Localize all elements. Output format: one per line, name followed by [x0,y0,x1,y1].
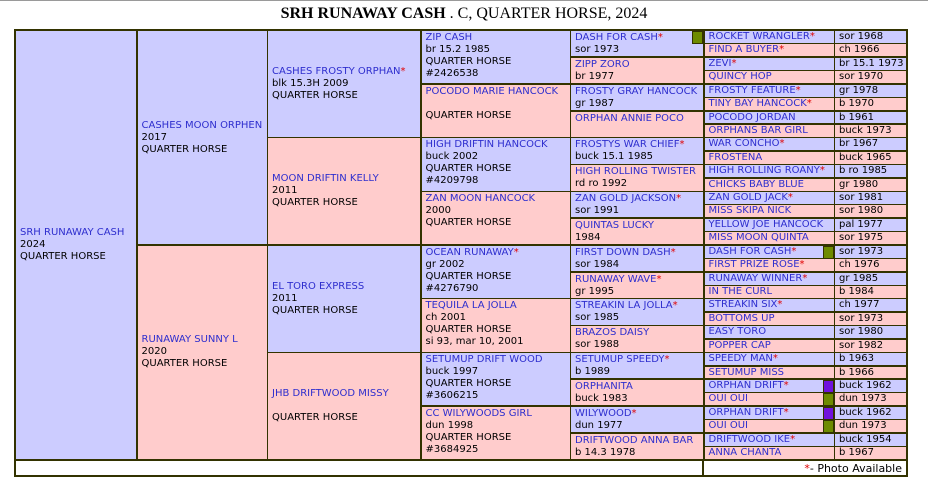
horse-detail-text: sor 1973 [839,246,883,258]
pedigree-cell-g6-1-detail: sor 1968 [835,31,906,43]
horse-name-line: ORPHAN DRIFT* [709,407,789,419]
horse-detail-text: sor 1980 [839,326,883,338]
horse-detail-text: 2011 [272,293,420,305]
horse-detail-text: sor 1980 [839,205,883,217]
horse-detail-text: sor 1975 [839,232,883,244]
pedigree-cell-g6-23-name: EASY TORO [705,326,834,338]
photo-available-asterisk: * [773,353,778,364]
horse-detail-text: QUARTER HORSE [426,163,570,175]
pedigree-cell-g6-31-name: DRIFTWOOD IKE* [705,434,834,446]
pedigree-cell-g5-9: FIRST DOWN DASH*sor 1984 [571,246,703,271]
horse-name-link[interactable]: HIGH DRIFTIN HANCOCK [426,139,548,150]
horse-name-link[interactable]: RUNAWAY WAVE [575,274,656,285]
horse-name-link[interactable]: STREAKIN SIX [709,299,778,310]
horse-detail-text: blk 15.3H 2009 [272,78,420,90]
horse-name-link[interactable]: SETUMUP SPEEDY [575,354,665,365]
pedigree-cell-g6-6-name: TINY BAY HANCOCK* [705,98,834,110]
pedigree-cell-g6-28-name: OUI OUI [705,393,834,405]
horse-detail-text: QUARTER HORSE [272,412,420,424]
pedigree-cell-g6-24-detail: sor 1982 [835,340,906,352]
horse-name-line: POCODO MARIE HANCOCK [426,86,570,98]
horse-name-line: EL TORO EXPRESS [272,281,420,293]
horse-name-link[interactable]: DRIFTWOOD IKE [709,434,791,445]
horse-detail-text: #3606215 [426,390,570,402]
horse-name-line: BOTTOMS UP [709,313,775,325]
horse-detail-text: QUARTER HORSE [272,90,420,102]
pedigree-cell-g6-21-name: STREAKIN SIX* [705,299,834,311]
pedigree-cell-g4-2: POCODO MARIE HANCOCKQUARTER HORSE [422,85,570,137]
horse-detail-text: QUARTER HORSE [426,110,570,122]
horse-name-line: ZEVI* [709,58,737,70]
title-horse-name: SRH RUNAWAY CASH [281,5,446,22]
horse-name-link[interactable]: CASHES MOON ORPHEN [142,120,263,131]
horse-name-link[interactable]: IN THE CURL [709,286,773,297]
horse-name-line: ZIPP ZORO [575,59,703,71]
horse-name-line: POPPER CAP [709,340,771,352]
horse-name-link[interactable]: SPEEDY MAN [709,353,773,364]
pedigree-cell-g6-15-detail: pal 1977 [835,219,906,231]
horse-name-line: WAR CONCHO* [709,138,785,150]
horse-name-link[interactable]: TEQUILA LA JOLLA [426,300,517,311]
horse-name-link[interactable]: FROSTY FEATURE [709,85,796,96]
photo-available-asterisk: * [802,273,807,284]
horse-detail-text: ch 1976 [839,259,879,271]
horse-name-link[interactable]: CHICKS BABY BLUE [709,179,804,190]
photo-available-asterisk: * [671,247,676,258]
horse-name-link[interactable]: WAR CONCHO [709,138,780,149]
horse-name-line: HIGH DRIFTIN HANCOCK [426,139,570,151]
pedigree-cell-g6-7-name: POCODO JORDAN [705,112,834,124]
horse-detail-text: sor 1981 [839,192,883,204]
horse-name-link[interactable]: SETUMUP MISS [709,367,785,378]
horse-detail-text: sor 1982 [839,340,883,352]
photo-color-box-purple [823,407,834,419]
horse-detail-text: b 1970 [839,98,874,110]
photo-available-asterisk: * [680,139,685,150]
photo-available-asterisk: * [788,192,793,203]
horse-name-link[interactable]: POCODO MARIE HANCOCK [426,86,559,97]
photo-available-asterisk: * [401,66,406,77]
horse-name-link[interactable]: ZIP CASH [426,32,473,43]
horse-name-line: DRIFTWOOD ANNA BAR [575,435,703,447]
horse-detail-text: QUARTER HORSE [272,305,420,317]
horse-name-link[interactable]: OUI OUI [709,420,748,431]
title-suffix: . C, QUARTER HORSE, 2024 [446,5,648,22]
pedigree-cell-g6-29-detail: buck 1962 [835,407,906,419]
horse-name-link[interactable]: HIGH ROLLING TWISTER [575,166,696,177]
horse-name-link[interactable]: QUINCY HOP [709,71,772,82]
photo-available-asterisk: * [777,299,782,310]
horse-detail-text: QUARTER HORSE [272,197,420,209]
photo-available-asterisk: * [780,138,785,149]
pedigree-cell-g6-19-name: RUNAWAY WINNER* [705,273,834,285]
pedigree-cell-g6-22-name: BOTTOMS UP [705,313,834,325]
horse-detail-text: sor 1970 [839,71,883,83]
horse-name-link[interactable]: TINY BAY HANCOCK [709,98,807,109]
horse-detail-text: QUARTER HORSE [20,251,136,263]
horse-name-link[interactable]: ZAN GOLD JACKSON [575,193,676,204]
pedigree-cell-g6-18-detail: ch 1976 [835,259,906,271]
pedigree-cell-g6-31-detail: buck 1954 [835,434,906,446]
horse-name-link[interactable]: EL TORO EXPRESS [272,281,364,292]
horse-detail-text: #3684925 [426,444,570,456]
horse-name-link[interactable]: ZIPP ZORO [575,59,630,70]
pedigree-cell-g5-7: ZAN GOLD JACKSON*sor 1991 [571,192,703,217]
pedigree-cell-g6-30-name: OUI OUI [705,420,834,432]
horse-name-link[interactable]: POPPER CAP [709,340,771,351]
horse-name-line: DASH FOR CASH* [575,32,703,44]
horse-name-link[interactable]: FROSTY GRAY HANCOCK [575,86,697,97]
pedigree-cell-g6-10-detail: buck 1965 [835,152,906,164]
horse-detail-text: #4209798 [426,175,570,187]
pedigree-cell-g6-5-name: FROSTY FEATURE* [705,85,834,97]
pedigree-cell-g3-3: EL TORO EXPRESS2011QUARTER HORSE [268,246,420,352]
horse-detail-text [575,125,703,137]
pedigree-cell-g3-2: MOON DRIFTIN KELLY2011QUARTER HORSE [268,138,420,244]
pedigree-cell-g5-12: BRAZOS DAISYsor 1988 [571,326,703,351]
horse-detail-text: b 1961 [839,112,874,124]
photo-color-box-green [692,31,703,44]
pedigree-cell-g6-26-detail: b 1966 [835,367,906,379]
horse-detail-text [426,98,570,110]
horse-name-line: FIND A BUYER* [709,44,785,56]
horse-name-link[interactable]: ZAN GOLD JACK [709,192,788,203]
pedigree-cell-g4-4: ZAN MOON HANCOCK2000QUARTER HORSE [422,192,570,244]
horse-name-link[interactable]: POCODO JORDAN [709,112,796,123]
photo-available-asterisk: * [791,246,796,257]
horse-name-link[interactable]: JHB DRIFTWOOD MISSY [272,388,389,399]
horse-name-link[interactable]: RUNAWAY WINNER [709,273,803,284]
pedigree-cell-g6-18-name: FIRST PRIZE ROSE* [705,259,834,271]
horse-name-link[interactable]: BOTTOMS UP [709,313,775,324]
horse-name-link[interactable]: CC WILYWOODS GIRL [426,408,532,419]
pedigree-table: SRH RUNAWAY CASH2024QUARTER HORSECASHES … [14,29,908,461]
horse-detail-text: ch 1966 [839,44,879,56]
horse-detail-text: buck 1954 [839,434,892,446]
horse-detail-text: sor 1985 [575,312,703,324]
horse-name-line: TINY BAY HANCOCK* [709,98,812,110]
horse-detail-text: dun 1973 [839,393,887,405]
horse-name-line: STREAKIN LA JOLLA* [575,300,703,312]
horse-name-link[interactable]: OCEAN RUNAWAY [426,247,514,258]
horse-detail-text: buck 1973 [839,125,892,137]
horse-detail-text: br 15.2 1985 [426,44,570,56]
pedigree-cell-g6-26-name: SETUMUP MISS [705,367,834,379]
photo-available-asterisk: * [790,434,795,445]
pedigree-cell-g6-2-detail: ch 1966 [835,44,906,56]
horse-detail-text: sor 1973 [839,313,883,325]
horse-name-link[interactable]: STREAKIN LA JOLLA [575,300,673,311]
horse-name-link[interactable]: BRAZOS DAISY [575,327,649,338]
horse-name-link[interactable]: ORPHAN DRIFT [709,380,784,391]
horse-name-link[interactable]: ORPHAN DRIFT [709,407,784,418]
footer-bar: * - Photo Available [14,461,908,477]
photo-available-asterisk: * [632,408,637,419]
horse-name-link[interactable]: QUINTAS LUCKY [575,220,654,231]
pedigree-cell-g5-4: ORPHAN ANNIE POCO [571,112,703,137]
pedigree-cell-g4-3: HIGH DRIFTIN HANCOCKbuck 2002QUARTER HOR… [422,138,570,190]
horse-name-line: SPEEDY MAN* [709,353,778,365]
horse-name-line: ORPHAN ANNIE POCO [575,113,703,125]
horse-detail-text: buck 1997 [426,366,570,378]
pedigree-cell-g6-13-detail: sor 1981 [835,192,906,204]
pedigree-cell-g6-12-detail: gr 1980 [835,179,906,191]
pedigree-cell-g6-8-name: ORPHANS BAR GIRL [705,125,834,137]
pedigree-cell-g6-12-name: CHICKS BABY BLUE [705,179,834,191]
pedigree-cell-g6-13-name: ZAN GOLD JACK* [705,192,834,204]
pedigree-cell-g6-20-name: IN THE CURL [705,286,834,298]
horse-detail-text: 2020 [142,346,267,358]
horse-detail-text: ch 2001 [426,312,570,324]
horse-name-link[interactable]: ROCKET WRANGLER [709,31,810,42]
photo-color-box-green [823,246,834,258]
horse-name-link[interactable]: SRH RUNAWAY CASH [20,227,124,238]
horse-detail-text: buck 1983 [575,393,703,405]
pedigree-cell-g2-1: CASHES MOON ORPHEN2017QUARTER HORSE [138,31,267,244]
horse-name-link[interactable]: EASY TORO [709,326,767,337]
horse-detail-text: buck 15.1 1985 [575,151,703,163]
horse-name-line: RUNAWAY SUNNY L [142,334,267,346]
horse-name-line: EASY TORO [709,326,767,338]
photo-available-asterisk: * [514,247,519,258]
pedigree-cell-g6-25-name: SPEEDY MAN* [705,353,834,365]
pedigree-cell-g6-16-name: MISS MOON QUINTA [705,232,834,244]
photo-available-asterisk: * [800,259,805,270]
photo-available-note: * - Photo Available [702,461,906,475]
horse-name-line: SETUMUP MISS [709,367,785,379]
horse-name-link[interactable]: SETUMUP DRIFT WOOD [426,354,543,365]
horse-name-line: MISS MOON QUINTA [709,232,809,244]
horse-detail-text: sor 1984 [575,259,703,271]
horse-detail-text: QUARTER HORSE [426,324,570,336]
horse-detail-text: rd ro 1992 [575,178,703,190]
horse-name-line: HIGH ROLLING ROANY* [709,165,825,177]
horse-name-line: ROCKET WRANGLER* [709,31,815,43]
horse-name-link[interactable]: FROSTENA [709,152,763,163]
horse-name-link[interactable]: CASHES FROSTY ORPHAN [272,66,401,77]
pedigree-cell-g5-2: ZIPP ZORObr 1977 [571,58,703,83]
horse-detail-text: #2426538 [426,68,570,80]
footer-spacer [16,461,702,475]
horse-detail-text: buck 1962 [839,380,892,392]
horse-name-line: ZAN GOLD JACK* [709,192,793,204]
horse-detail-text: b 1967 [839,447,874,459]
horse-name-link[interactable]: OUI OUI [709,393,748,404]
pedigree-cell-g6-3-name: ZEVI* [705,58,834,70]
horse-name-line: ZIP CASH [426,32,570,44]
pedigree-cell-g5-10: RUNAWAY WAVE*gr 1995 [571,273,703,298]
photo-available-asterisk: * [779,44,784,55]
horse-detail-text: buck 1962 [839,407,892,419]
pedigree-cell-g6-2-name: FIND A BUYER* [705,44,834,56]
horse-name-line: OUI OUI [709,393,748,405]
horse-name-link[interactable]: ANNA CHANTA [709,447,782,458]
page-title: SRH RUNAWAY CASH . C, QUARTER HORSE, 202… [0,5,928,23]
horse-name-link[interactable]: DASH FOR CASH [575,32,658,43]
horse-detail-text: gr 1987 [575,98,703,110]
horse-detail-text: gr 2002 [426,259,570,271]
horse-name-line: QUINCY HOP [709,71,772,83]
horse-name-link[interactable]: DASH FOR CASH [709,246,792,257]
horse-name-link[interactable]: MOON DRIFTIN KELLY [272,173,379,184]
pedigree-cell-g6-11-detail: b ro 1985 [835,165,906,177]
horse-name-line: SRH RUNAWAY CASH [20,227,136,239]
pedigree-cell-g4-7: SETUMUP DRIFT WOODbuck 1997QUARTER HORSE… [422,353,570,405]
horse-name-line: SETUMUP DRIFT WOOD [426,354,570,366]
horse-name-link[interactable]: FIND A BUYER [709,44,780,55]
pedigree-cell-g6-9-detail: br 1967 [835,138,906,150]
pedigree-cell-g6-32-detail: b 1967 [835,447,906,459]
horse-detail-text: QUARTER HORSE [426,56,570,68]
pedigree-cell-g1-1: SRH RUNAWAY CASH2024QUARTER HORSE [16,31,136,459]
horse-name-link[interactable]: ORPHANITA [575,381,633,392]
pedigree-cell-g6-3-detail: br 15.1 1973 [835,58,906,70]
horse-name-link[interactable]: ZAN MOON HANCOCK [426,193,536,204]
horse-name-line: STREAKIN SIX* [709,299,783,311]
pedigree-cell-g5-8: QUINTAS LUCKY1984 [571,219,703,244]
horse-detail-text: br 15.1 1973 [839,58,904,70]
pedigree-cell-g5-1: DASH FOR CASH*sor 1973 [571,31,703,56]
photo-available-asterisk: * [673,300,678,311]
pedigree-cell-g5-14: ORPHANITAbuck 1983 [571,380,703,405]
horse-detail-text: br 1977 [575,71,703,83]
horse-name-link[interactable]: DRIFTWOOD ANNA BAR [575,435,693,446]
horse-name-line: POCODO JORDAN [709,112,796,124]
horse-name-link[interactable]: ORPHAN ANNIE POCO [575,113,684,124]
pedigree-cell-g6-10-name: FROSTENA [705,152,834,164]
horse-name-line: ANNA CHANTA [709,447,782,459]
horse-name-link[interactable]: WILYWOOD [575,408,632,419]
horse-detail-text: gr 1985 [839,273,878,285]
pedigree-cell-g6-6-detail: b 1970 [835,98,906,110]
horse-detail-text: si 93, mar 10, 2001 [426,336,570,348]
horse-detail-text: 2024 [20,239,136,251]
horse-name-link[interactable]: RUNAWAY SUNNY L [142,334,238,345]
pedigree-cell-g5-3: FROSTY GRAY HANCOCKgr 1987 [571,85,703,110]
horse-name-line: YELLOW JOE HANCOCK [709,219,824,231]
horse-name-line: BRAZOS DAISY [575,327,703,339]
horse-name-line: FROSTY GRAY HANCOCK [575,86,703,98]
pedigree-cell-g2-2: RUNAWAY SUNNY L2020QUARTER HORSE [138,246,267,459]
photo-available-asterisk: * [665,354,670,365]
photo-available-asterisk: * [796,85,801,96]
horse-detail-text: QUARTER HORSE [142,144,267,156]
photo-color-box-purple [823,380,834,392]
horse-detail-text: QUARTER HORSE [426,271,570,283]
horse-detail-text: dun 1998 [426,420,570,432]
horse-detail-text [272,400,420,412]
horse-name-line: RUNAWAY WAVE* [575,274,703,286]
pedigree-cell-g6-27-name: ORPHAN DRIFT* [705,380,834,392]
pedigree-cell-g6-5-detail: gr 1978 [835,85,906,97]
footer-note-text: - Photo Available [810,462,902,475]
pedigree-cell-g6-17-detail: sor 1973 [835,246,906,258]
horse-name-line: DRIFTWOOD IKE* [709,434,796,446]
pedigree-cell-g6-16-detail: sor 1975 [835,232,906,244]
horse-detail-text: b 1989 [575,366,703,378]
pedigree-cell-g5-15: WILYWOOD*dun 1977 [571,407,703,432]
pedigree-cell-g6-22-detail: sor 1973 [835,313,906,325]
photo-available-asterisk: * [820,165,825,176]
photo-available-asterisk: * [656,274,661,285]
horse-name-line: FROSTYS WAR CHIEF* [575,139,703,151]
horse-detail-text: 2000 [426,205,570,217]
photo-available-asterisk: * [807,98,812,109]
pedigree-cell-g6-8-detail: buck 1973 [835,125,906,137]
horse-name-link[interactable]: YELLOW JOE HANCOCK [709,219,824,230]
horse-detail-text: 1984 [575,232,703,244]
horse-name-line: SETUMUP SPEEDY* [575,354,703,366]
horse-detail-text: dun 1977 [575,420,703,432]
pedigree-cell-g6-29-name: ORPHAN DRIFT* [705,407,834,419]
photo-color-box-green [823,420,834,432]
pedigree-cell-g6-23-detail: sor 1980 [835,326,906,338]
pedigree-cell-g3-1: CASHES FROSTY ORPHAN*blk 15.3H 2009QUART… [268,31,420,137]
pedigree-cell-g6-30-detail: dun 1973 [835,420,906,432]
horse-detail-text: b 1966 [839,367,874,379]
horse-detail-text: QUARTER HORSE [426,432,570,444]
horse-name-line: MOON DRIFTIN KELLY [272,173,420,185]
horse-name-line: OCEAN RUNAWAY* [426,247,570,259]
horse-name-link[interactable]: ZEVI [709,58,732,69]
horse-detail-text: sor 1973 [575,44,703,56]
horse-name-line: OUI OUI [709,420,748,432]
horse-name-line: CASHES MOON ORPHEN [142,120,267,132]
pedigree-cell-g5-11: STREAKIN LA JOLLA*sor 1985 [571,299,703,324]
horse-name-link[interactable]: MISS MOON QUINTA [709,232,809,243]
horse-name-link[interactable]: HIGH ROLLING ROANY [709,165,820,176]
photo-available-asterisk: * [731,58,736,69]
horse-name-link[interactable]: FROSTYS WAR CHIEF [575,139,680,150]
pedigree-cell-g5-5: FROSTYS WAR CHIEF*buck 15.1 1985 [571,138,703,163]
horse-detail-text: b 1984 [839,286,874,298]
pedigree-cell-g6-21-detail: ch 1977 [835,299,906,311]
horse-name-link[interactable]: FIRST DOWN DASH [575,247,671,258]
horse-name-line: CASHES FROSTY ORPHAN* [272,66,420,78]
horse-detail-text: b ro 1985 [839,165,887,177]
pedigree-cell-g4-6: TEQUILA LA JOLLAch 2001QUARTER HORSEsi 9… [422,299,570,351]
pedigree-cell-g6-14-detail: sor 1980 [835,205,906,217]
pedigree-cell-g6-7-detail: b 1961 [835,112,906,124]
photo-available-asterisk: * [784,380,789,391]
pedigree-cell-g5-16: DRIFTWOOD ANNA BARb 14.3 1978 [571,434,703,459]
horse-detail-text: #4276790 [426,283,570,295]
horse-name-link[interactable]: ORPHANS BAR GIRL [709,125,808,136]
pedigree-cell-g6-17-name: DASH FOR CASH* [705,246,834,258]
pedigree-cell-g6-27-detail: buck 1962 [835,380,906,392]
horse-name-line: ZAN MOON HANCOCK [426,193,570,205]
horse-name-line: ORPHANS BAR GIRL [709,125,808,137]
horse-name-line: FIRST PRIZE ROSE* [709,259,805,271]
photo-available-asterisk: * [784,407,789,418]
horse-detail-text: b 14.3 1978 [575,447,703,459]
photo-color-box-green [823,393,834,405]
horse-name-link[interactable]: FIRST PRIZE ROSE [709,259,800,270]
photo-available-asterisk: * [658,32,663,43]
horse-name-line: ORPHAN DRIFT* [709,380,789,392]
horse-name-link[interactable]: MISS SKIPA NICK [709,205,792,216]
horse-detail-text: QUARTER HORSE [142,358,267,370]
pedigree-cell-g6-32-name: ANNA CHANTA [705,447,834,459]
horse-name-line: DASH FOR CASH* [709,246,797,258]
horse-name-line: FIRST DOWN DASH* [575,247,703,259]
pedigree-cell-g6-14-name: MISS SKIPA NICK [705,205,834,217]
pedigree-cell-g4-5: OCEAN RUNAWAY*gr 2002QUARTER HORSE#42767… [422,246,570,298]
pedigree-cell-g5-6: HIGH ROLLING TWISTERrd ro 1992 [571,165,703,190]
pedigree-cell-g6-4-name: QUINCY HOP [705,71,834,83]
horse-detail-text: 2017 [142,132,267,144]
pedigree-cell-g6-24-name: POPPER CAP [705,340,834,352]
